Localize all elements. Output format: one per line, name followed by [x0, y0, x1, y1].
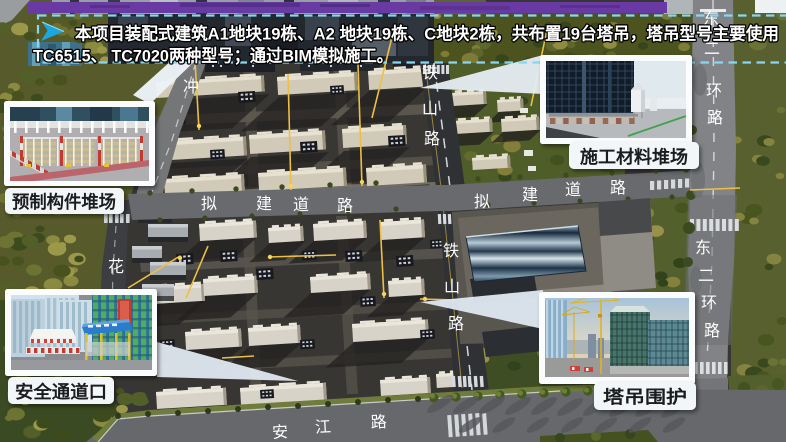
svg-text:建: 建 [256, 195, 272, 213]
svg-text:环: 环 [706, 83, 722, 100]
svg-text:山: 山 [444, 278, 460, 296]
svg-text:路: 路 [424, 130, 440, 148]
svg-text:道: 道 [293, 196, 309, 214]
svg-text:施工材料堆场: 施工材料堆场 [580, 147, 688, 167]
svg-text:安: 安 [272, 423, 289, 442]
svg-text:路: 路 [610, 179, 626, 197]
svg-text:路: 路 [448, 315, 464, 333]
svg-text:冲: 冲 [183, 78, 199, 96]
svg-text:建: 建 [522, 186, 538, 204]
svg-text:拟: 拟 [201, 195, 217, 213]
svg-text:预制构件堆场: 预制构件堆场 [12, 192, 116, 212]
svg-text:二: 二 [698, 268, 714, 285]
svg-text:花: 花 [108, 258, 124, 276]
svg-text:本项目装配式建筑A1地块19栋、A2 地块19栋、C地块2栋: 本项目装配式建筑A1地块19栋、A2 地块19栋、C地块2栋，共布置19台塔吊，… [75, 24, 779, 44]
svg-text:道: 道 [565, 181, 581, 199]
svg-text:铁: 铁 [443, 242, 459, 260]
svg-text:路: 路 [337, 197, 353, 215]
svg-text:安全通道口: 安全通道口 [15, 382, 107, 402]
svg-text:TC6515、 TC7020两种型号；通过BIM模拟施工。: TC6515、 TC7020两种型号；通过BIM模拟施工。 [33, 46, 393, 66]
svg-text:二: 二 [704, 41, 720, 58]
svg-text:路: 路 [370, 413, 387, 432]
svg-text:东: 东 [695, 239, 711, 257]
svg-text:铁: 铁 [422, 64, 438, 82]
svg-text:环: 环 [701, 295, 717, 312]
svg-text:山: 山 [422, 100, 438, 118]
svg-text:江: 江 [314, 418, 331, 437]
svg-text:路: 路 [707, 109, 723, 127]
svg-text:路: 路 [704, 322, 720, 340]
svg-text:塔吊围护: 塔吊围护 [603, 387, 687, 407]
svg-text:拟: 拟 [474, 193, 490, 211]
